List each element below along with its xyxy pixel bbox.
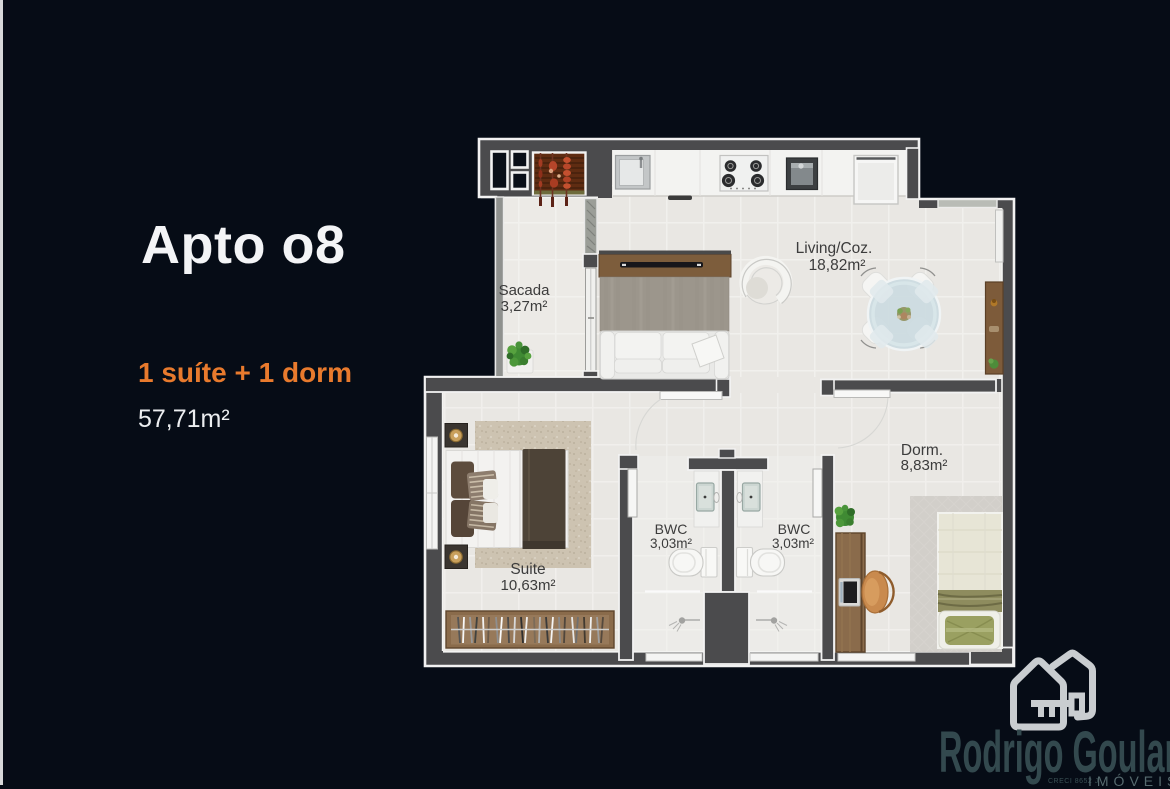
svg-text:18,82m²: 18,82m²: [809, 257, 866, 274]
svg-text:3,27m²: 3,27m²: [501, 298, 548, 315]
svg-text:3,03m²: 3,03m²: [772, 536, 815, 551]
svg-text:Suite: Suite: [510, 561, 545, 578]
svg-text:10,63m²: 10,63m²: [500, 577, 555, 594]
svg-text:Living/Coz.: Living/Coz.: [796, 240, 873, 257]
svg-text:BWC: BWC: [778, 521, 811, 537]
svg-text:BWC: BWC: [655, 521, 688, 537]
svg-text:Sacada: Sacada: [499, 282, 551, 299]
svg-text:8,83m²: 8,83m²: [901, 457, 948, 474]
svg-text:3,03m²: 3,03m²: [650, 536, 693, 551]
